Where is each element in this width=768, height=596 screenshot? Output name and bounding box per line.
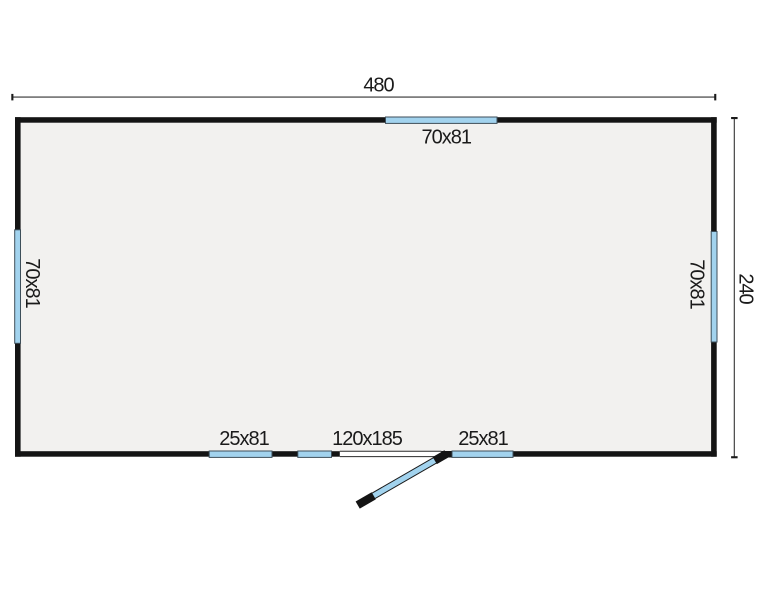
svg-text:70x81: 70x81 bbox=[21, 258, 43, 308]
svg-text:240: 240 bbox=[735, 273, 757, 304]
svg-text:70x81: 70x81 bbox=[422, 126, 472, 148]
svg-text:25x81: 25x81 bbox=[458, 428, 508, 450]
svg-text:120x185: 120x185 bbox=[332, 428, 403, 450]
svg-text:70x81: 70x81 bbox=[685, 259, 707, 309]
svg-text:25x81: 25x81 bbox=[219, 428, 269, 450]
svg-text:480: 480 bbox=[363, 74, 394, 96]
